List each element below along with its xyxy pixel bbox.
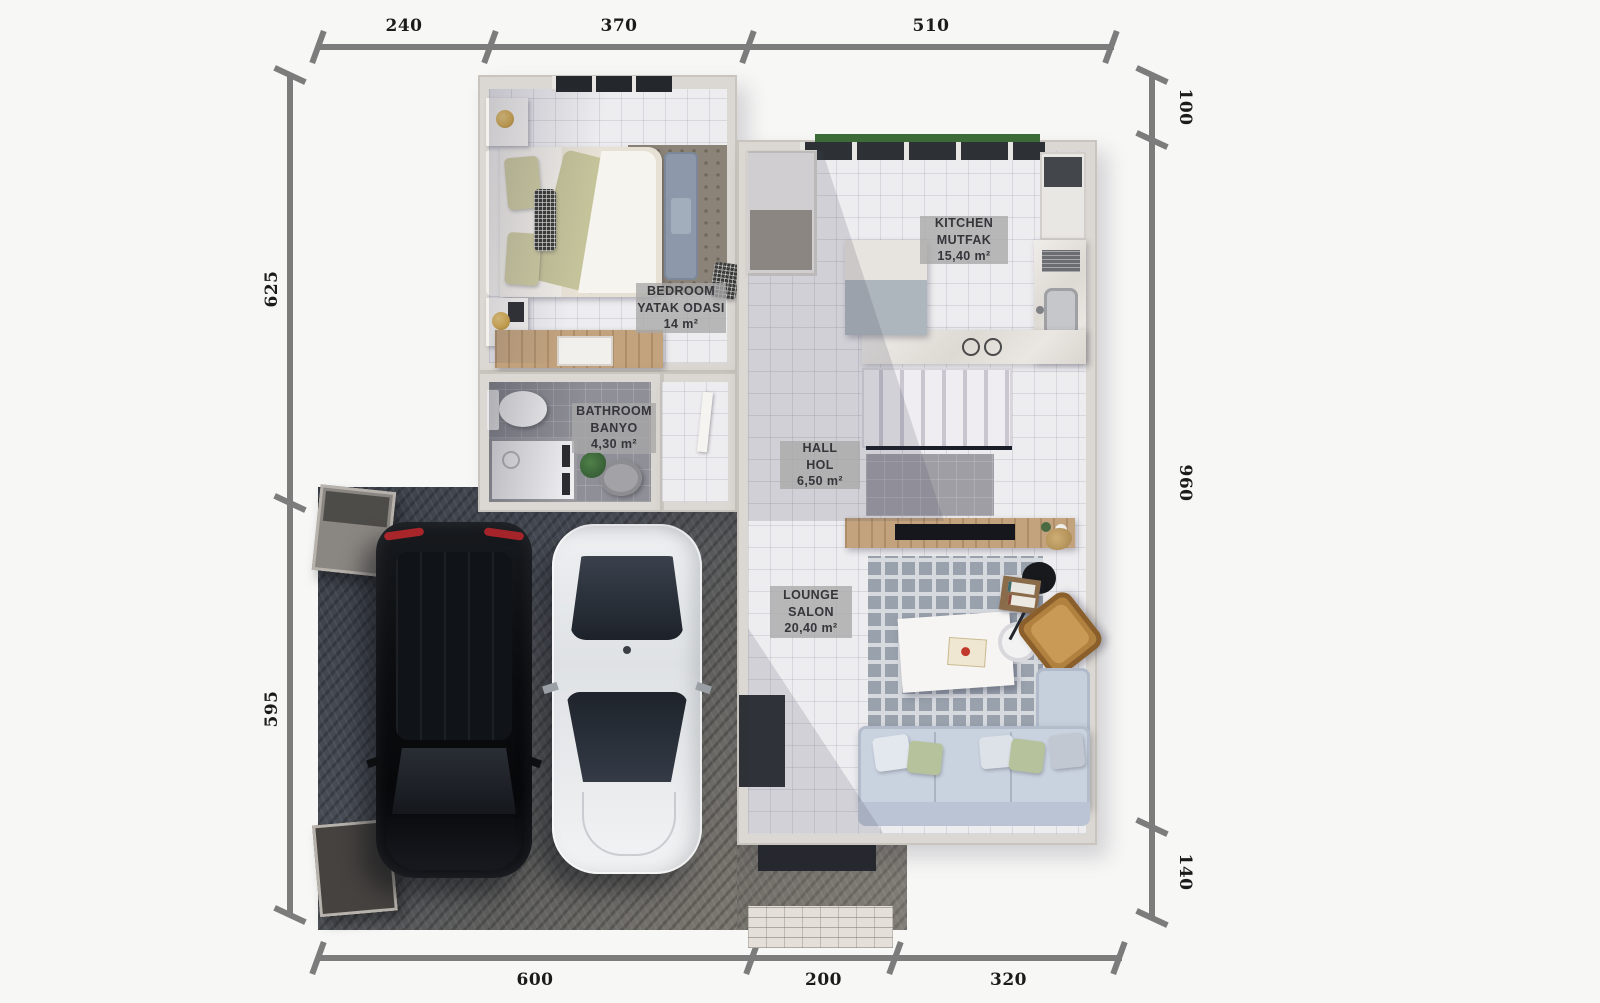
room-local-name: BANYO xyxy=(590,420,637,437)
dimension-value: 320 xyxy=(895,970,1122,990)
armchair-seat xyxy=(1028,602,1092,667)
room-local-name: SALON xyxy=(788,604,834,621)
dish-rack xyxy=(1042,250,1080,272)
suv-hood xyxy=(386,818,522,870)
dimension-bar xyxy=(1149,75,1155,918)
planter-shadow xyxy=(323,491,390,528)
white-car xyxy=(552,524,702,874)
dimension-bar xyxy=(318,955,1122,961)
dimension-value: 625 xyxy=(262,229,282,349)
room-label-lounge: LOUNGE SALON 20,40 m² xyxy=(770,586,852,638)
kitchen-window xyxy=(800,142,1045,160)
dimension-bar xyxy=(287,75,293,915)
car-rear-window xyxy=(570,556,684,640)
tray-fruit xyxy=(961,647,971,657)
sofa xyxy=(858,726,1090,810)
room-area: 6,50 m² xyxy=(797,473,843,490)
serving-tray xyxy=(947,637,987,668)
room-area: 14 m² xyxy=(664,316,699,333)
room-local-name: HOL xyxy=(806,457,834,474)
corridor-floor xyxy=(662,382,728,502)
room-name: KITCHEN xyxy=(935,215,993,232)
dimension-value: 240 xyxy=(318,16,490,36)
room-area: 4,30 m² xyxy=(591,436,637,453)
tv-screen xyxy=(895,524,1015,540)
room-local-name: YATAK ODASI xyxy=(637,300,725,317)
coffee-table xyxy=(898,611,1015,693)
car-windshield xyxy=(566,692,688,782)
taillight-right xyxy=(484,527,525,540)
room-name: HALL xyxy=(803,440,838,457)
book xyxy=(1008,594,1036,608)
kitchen-sink xyxy=(1044,288,1078,336)
car-hood-line xyxy=(582,792,676,856)
room-label-kitchen: KITCHEN MUTFAK 15,40 m² xyxy=(920,216,1008,264)
taillight-left xyxy=(384,527,425,540)
book xyxy=(1007,581,1035,595)
room-area: 15,40 m² xyxy=(937,248,990,265)
cooktop-burner xyxy=(984,338,1002,356)
room-label-bedroom: BEDROOM YATAK ODASI 14 m² xyxy=(636,283,726,333)
cooktop-burner xyxy=(962,338,980,356)
dimension-value: 140 xyxy=(1175,812,1195,932)
room-name: BATHROOM xyxy=(576,403,652,420)
dimension-value: 600 xyxy=(318,970,752,990)
faucet xyxy=(1036,306,1044,314)
kitchen-tall-cabinets xyxy=(1040,152,1086,240)
tv-console xyxy=(845,518,1075,548)
dimension-value: 510 xyxy=(748,16,1114,36)
dimension-bar xyxy=(318,44,1114,50)
dimension-value: 960 xyxy=(1175,423,1195,543)
floor-plan-scene: 240 370 510 600 200 320 625 595 100 960 … xyxy=(0,0,1600,1003)
porch-doormat xyxy=(758,845,876,871)
suv-windshield xyxy=(392,748,516,814)
dimension-value: 595 xyxy=(262,649,282,769)
suv-roof xyxy=(396,552,512,740)
room-name: LOUNGE xyxy=(783,587,839,604)
sofa-pillow-olive xyxy=(1008,738,1046,774)
room-local-name: MUTFAK xyxy=(937,232,991,249)
sofa-pillow-olive xyxy=(906,740,943,775)
room-label-hall: HALL HOL 6,50 m² xyxy=(780,441,860,489)
sofa-pillow-gray xyxy=(1048,732,1085,769)
fridge xyxy=(1044,157,1082,187)
dimension-value: 200 xyxy=(752,970,895,990)
garden-wall-brick xyxy=(748,906,893,948)
black-suv xyxy=(376,522,532,878)
dimension-value: 370 xyxy=(490,16,748,36)
side-table-books xyxy=(999,576,1041,615)
kitchen-counter-bottom xyxy=(862,330,1086,364)
room-name: BEDROOM xyxy=(647,283,715,300)
car-antenna xyxy=(623,646,631,654)
room-label-bathroom: BATHROOM BANYO 4,30 m² xyxy=(572,403,656,453)
dimension-value: 100 xyxy=(1175,47,1195,167)
sofa-backrest xyxy=(858,802,1090,826)
room-area: 20,40 m² xyxy=(784,620,837,637)
